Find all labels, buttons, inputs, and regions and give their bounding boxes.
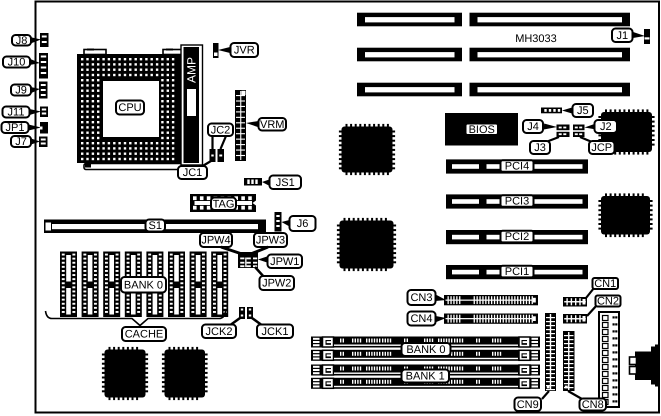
svg-text:J1: J1: [616, 30, 628, 42]
svg-text:J6: J6: [297, 218, 309, 230]
svg-text:TAG: TAG: [213, 198, 235, 210]
svg-text:CN3: CN3: [410, 292, 432, 304]
svg-text:JP1: JP1: [6, 122, 25, 134]
svg-text:CPU: CPU: [118, 102, 141, 114]
svg-text:CN8: CN8: [582, 399, 604, 411]
svg-text:JC1: JC1: [183, 167, 203, 179]
svg-text:JPW1: JPW1: [270, 256, 299, 268]
svg-text:J7: J7: [15, 136, 27, 148]
svg-text:JS1: JS1: [276, 177, 295, 189]
svg-text:PCI3: PCI3: [505, 196, 529, 208]
svg-text:CN9: CN9: [517, 399, 539, 411]
svg-text:CN2: CN2: [597, 296, 619, 308]
svg-text:JC2: JC2: [211, 124, 231, 136]
svg-text:PCI2: PCI2: [505, 231, 529, 243]
svg-text:J9: J9: [15, 85, 27, 97]
svg-text:JPW2: JPW2: [262, 278, 291, 290]
svg-text:BIOS: BIOS: [469, 124, 495, 136]
svg-text:BANK 0: BANK 0: [124, 279, 163, 291]
svg-text:PCI4: PCI4: [505, 161, 529, 173]
svg-text:JCP: JCP: [591, 142, 612, 154]
svg-text:JPW3: JPW3: [256, 235, 285, 247]
svg-text:CN4: CN4: [410, 313, 432, 325]
svg-text:J8: J8: [16, 35, 28, 47]
svg-text:JVR: JVR: [234, 45, 255, 57]
svg-text:PCI1: PCI1: [505, 266, 529, 278]
svg-text:J2: J2: [600, 121, 612, 133]
svg-text:J11: J11: [8, 107, 25, 119]
svg-text:CACHE: CACHE: [125, 329, 164, 341]
svg-text:J3: J3: [534, 142, 546, 154]
svg-text:JCK1: JCK1: [262, 326, 289, 338]
svg-text:MH3033: MH3033: [515, 33, 557, 45]
svg-text:J10: J10: [8, 57, 26, 69]
svg-text:BANK 1: BANK 1: [406, 371, 445, 383]
svg-text:CN1: CN1: [594, 278, 616, 290]
svg-text:VRM: VRM: [260, 119, 284, 131]
svg-text:S1: S1: [149, 220, 162, 232]
svg-text:JPW4: JPW4: [201, 235, 230, 247]
svg-text:JCK2: JCK2: [206, 326, 233, 338]
svg-text:BANK 0: BANK 0: [406, 344, 445, 356]
svg-text:J5: J5: [577, 105, 589, 117]
svg-text:AMP: AMP: [185, 57, 199, 83]
svg-text:J4: J4: [527, 121, 539, 133]
